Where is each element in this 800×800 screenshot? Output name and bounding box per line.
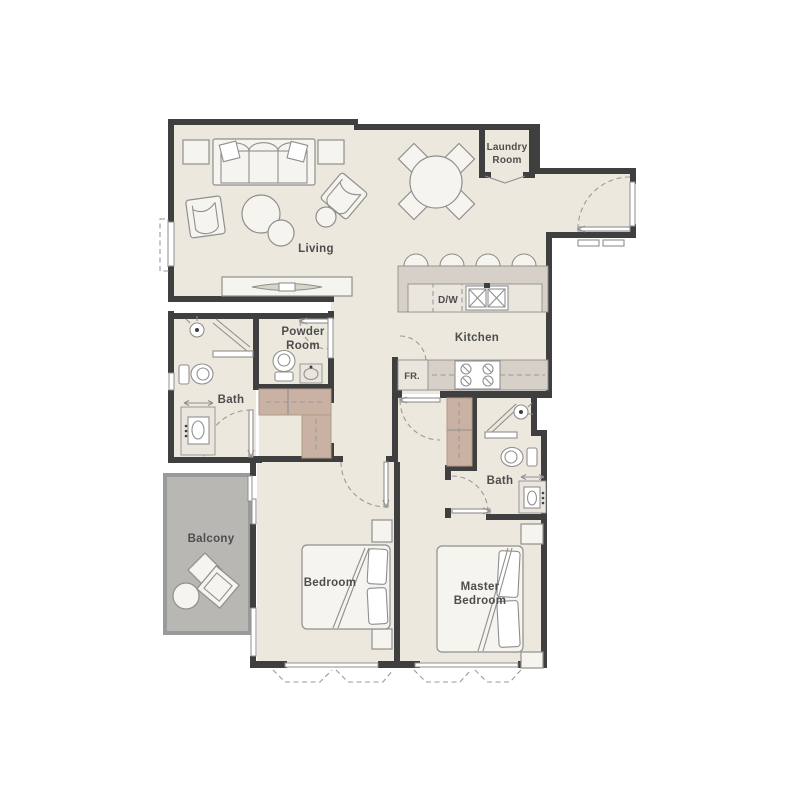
- wall-segment: [168, 119, 358, 125]
- label-powder-line2: Room: [286, 340, 320, 352]
- balcony-slider-panel: [248, 476, 252, 501]
- living-window: [168, 222, 174, 266]
- nightstand: [521, 524, 543, 544]
- end-table: [318, 140, 344, 164]
- powder-vanity: [300, 364, 322, 383]
- coffee-table-small: [268, 220, 294, 246]
- wall-segment: [171, 313, 334, 319]
- sofa-pillow: [219, 141, 240, 162]
- master-window-sill-dashed: [475, 670, 521, 682]
- wall-segment: [445, 508, 451, 518]
- master-wardrobe: [447, 398, 472, 466]
- wall-segment: [472, 396, 477, 470]
- balcony-table: [173, 583, 199, 609]
- label-fridge: FR.: [404, 371, 420, 382]
- toilet: [501, 448, 537, 467]
- wall-segment: [529, 124, 535, 178]
- wall-segment: [445, 470, 451, 480]
- pillow: [367, 588, 388, 625]
- entry-door-leaf: [578, 227, 630, 231]
- wall-segment: [392, 357, 398, 462]
- floor-plan: Living Kitchen Laundry Room Powder Room …: [0, 0, 800, 800]
- nightstand: [372, 629, 392, 649]
- living-window-exterior-dashed: [160, 219, 168, 271]
- master-hall-door-leaf: [400, 398, 440, 402]
- wall-segment: [168, 119, 174, 222]
- wall-segment: [354, 124, 540, 130]
- nightstand: [372, 520, 392, 542]
- sofa-pillow: [287, 141, 308, 162]
- label-master-line1: Master: [461, 581, 500, 593]
- powder-door-frame: [328, 318, 333, 358]
- entry-console: [578, 240, 624, 246]
- label-living: Living: [298, 243, 334, 255]
- pillow: [497, 600, 520, 647]
- bedroom-door-leaf: [384, 462, 388, 507]
- bath-left-door-leaf: [249, 410, 253, 457]
- wall-segment: [534, 168, 636, 174]
- label-bath-left: Bath: [218, 394, 245, 406]
- shower-threshold: [213, 351, 253, 357]
- balcony-floor: [165, 475, 250, 633]
- bath-right-door-leaf: [452, 509, 490, 513]
- label-kitchen: Kitchen: [455, 332, 499, 344]
- bedroom-window-sill-dashed: [336, 670, 393, 682]
- end-table: [183, 140, 209, 164]
- wall-segment: [168, 390, 174, 463]
- label-powder-line1: Powder: [281, 326, 325, 338]
- nightstand: [521, 652, 543, 668]
- wall-segment: [253, 313, 259, 390]
- wall-segment: [168, 311, 174, 373]
- side-table: [316, 207, 336, 227]
- faucet: [484, 283, 490, 288]
- tv-base: [279, 283, 295, 291]
- wall-segment: [250, 462, 256, 476]
- shower-threshold: [485, 432, 517, 438]
- kitchen-sink: [466, 283, 508, 310]
- label-balcony: Balcony: [188, 533, 235, 545]
- bath-left-window: [169, 373, 174, 390]
- label-laundry-line1: Laundry: [487, 142, 528, 153]
- master-window: [415, 663, 518, 667]
- tv-console: [222, 277, 352, 296]
- master-window-sill-dashed: [414, 670, 471, 682]
- wall-segment: [328, 311, 334, 318]
- toilet: [273, 351, 295, 382]
- label-bath-right: Bath: [487, 475, 514, 487]
- entry-door-frame: [630, 182, 635, 226]
- label-master-line2: Bedroom: [454, 595, 507, 607]
- label-dishwasher: D/W: [438, 295, 458, 306]
- wall-segment: [523, 172, 535, 178]
- bedroom-side-window: [251, 608, 256, 656]
- armchair: [186, 196, 226, 239]
- stove: [455, 361, 500, 389]
- wall-segment: [479, 124, 485, 178]
- wall-segment: [392, 390, 402, 398]
- balcony-slider-panel: [252, 499, 256, 524]
- wall-segment: [548, 232, 636, 238]
- bath-vanity: [181, 401, 215, 456]
- wall-segment: [250, 656, 256, 668]
- wall-segment: [378, 661, 396, 668]
- label-bedroom: Bedroom: [304, 577, 357, 589]
- wall-segment: [486, 514, 546, 520]
- bedroom-window-sill-dashed: [273, 670, 332, 682]
- wall-segment: [168, 457, 262, 463]
- label-laundry-line2: Room: [492, 155, 521, 166]
- sofa: [213, 139, 315, 185]
- floor-plan-page: Living Kitchen Laundry Room Powder Room …: [0, 0, 800, 800]
- wall-segment: [250, 524, 256, 608]
- toilet: [179, 364, 213, 384]
- wall-segment: [394, 462, 400, 668]
- dining-table: [410, 156, 462, 208]
- pillow: [367, 549, 388, 585]
- wall-segment: [168, 296, 334, 302]
- bedroom-window: [285, 663, 378, 667]
